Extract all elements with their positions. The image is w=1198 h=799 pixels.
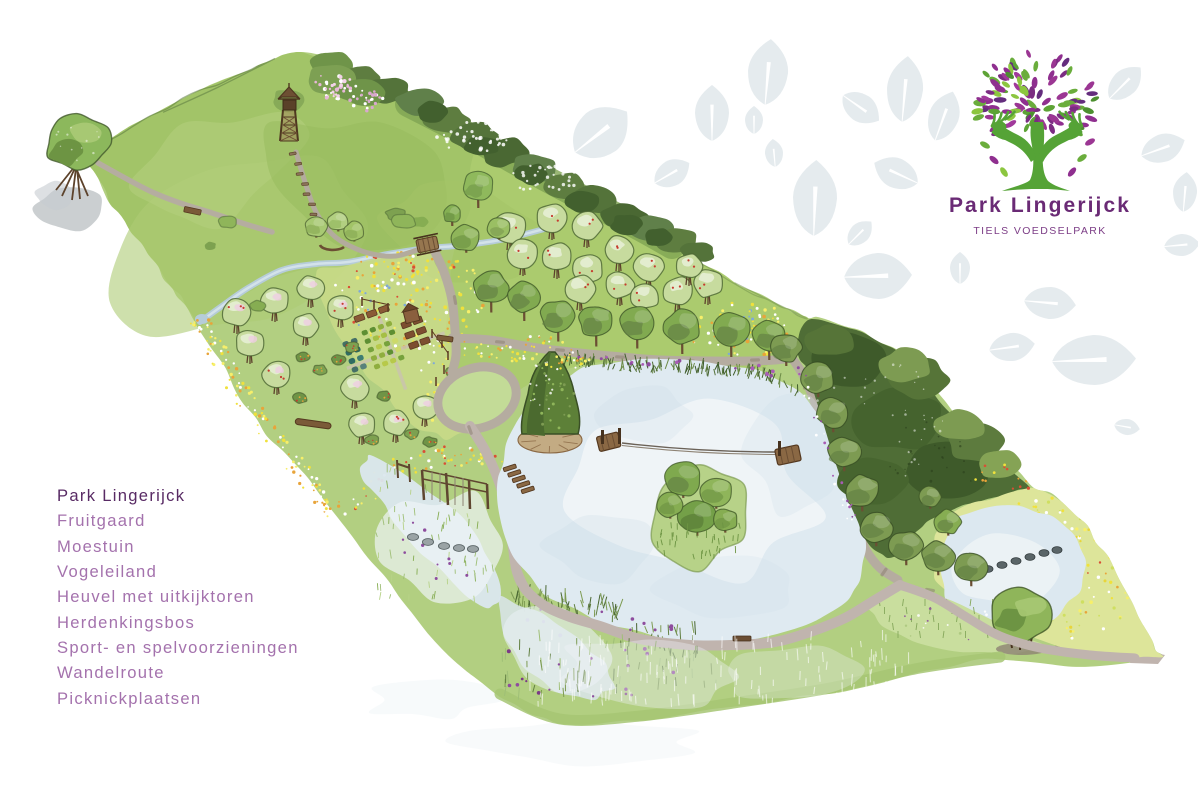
svg-text:Herdenkingsbos: Herdenkingsbos bbox=[57, 613, 195, 632]
svg-text:Park Lingerijck: Park Lingerijck bbox=[949, 194, 1131, 217]
svg-text:Moestuin: Moestuin bbox=[57, 537, 135, 556]
svg-text:TIELS VOEDSELPARK: TIELS VOEDSELPARK bbox=[973, 225, 1106, 237]
svg-text:Picknickplaatsen: Picknickplaatsen bbox=[57, 689, 201, 708]
svg-text:Park Lingerijck: Park Lingerijck bbox=[57, 486, 185, 505]
svg-text:Vogeleiland: Vogeleiland bbox=[57, 562, 157, 581]
svg-text:Sport- en spelvoorzieningen: Sport- en spelvoorzieningen bbox=[57, 638, 299, 657]
svg-text:Wandelroute: Wandelroute bbox=[57, 663, 165, 682]
svg-text:Fruitgaard: Fruitgaard bbox=[57, 511, 146, 530]
svg-text:Heuvel met uitkijktoren: Heuvel met uitkijktoren bbox=[57, 587, 255, 606]
